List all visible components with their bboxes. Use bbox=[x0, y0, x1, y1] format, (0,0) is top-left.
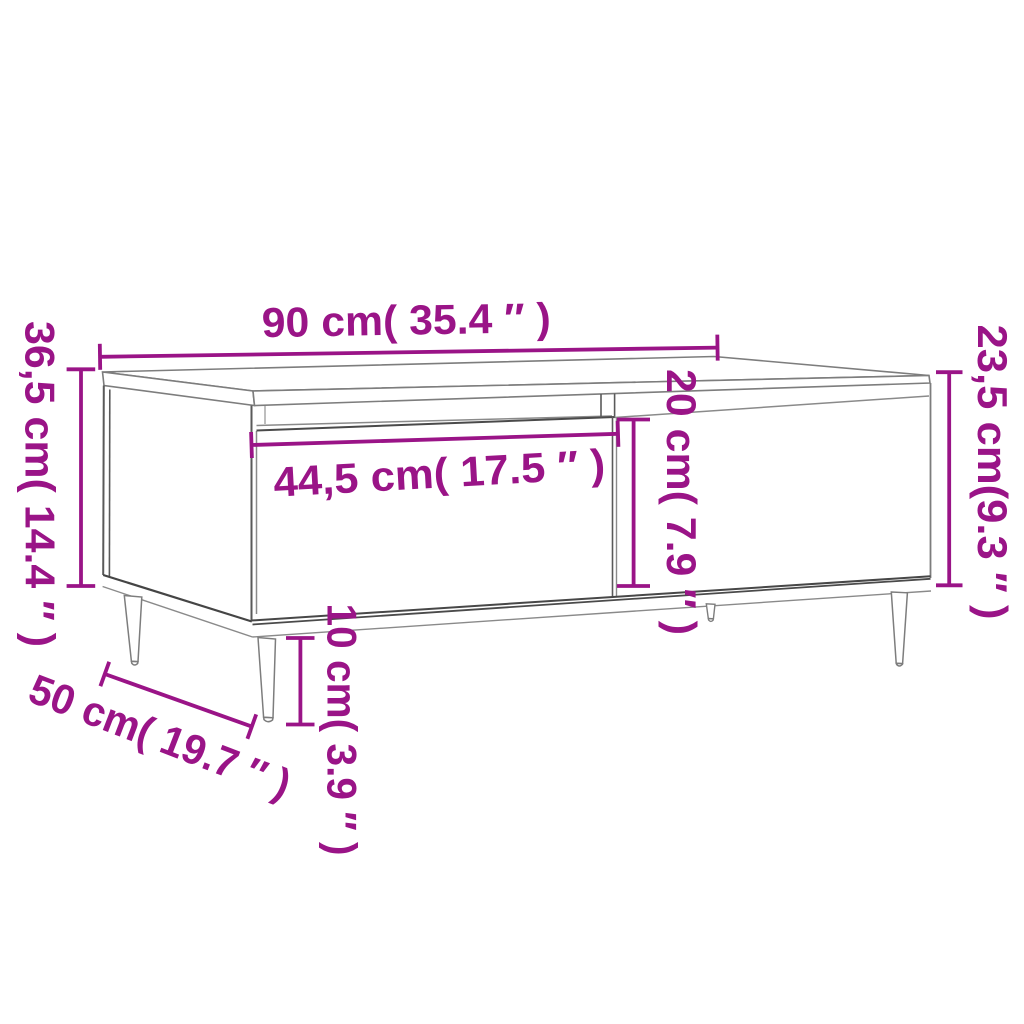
svg-text:10 cm( 3.9 ″ ): 10 cm( 3.9 ″ ) bbox=[319, 604, 366, 856]
svg-text:20 cm( 7.9 ″ ): 20 cm( 7.9 ″ ) bbox=[658, 369, 705, 635]
svg-text:36,5 cm( 14.4 ″ ): 36,5 cm( 14.4 ″ ) bbox=[17, 321, 64, 647]
svg-text:23,5 cm(9.3 ″ ): 23,5 cm(9.3 ″ ) bbox=[969, 325, 1016, 620]
svg-text:90 cm( 35.4 ″ ): 90 cm( 35.4 ″ ) bbox=[261, 294, 551, 346]
